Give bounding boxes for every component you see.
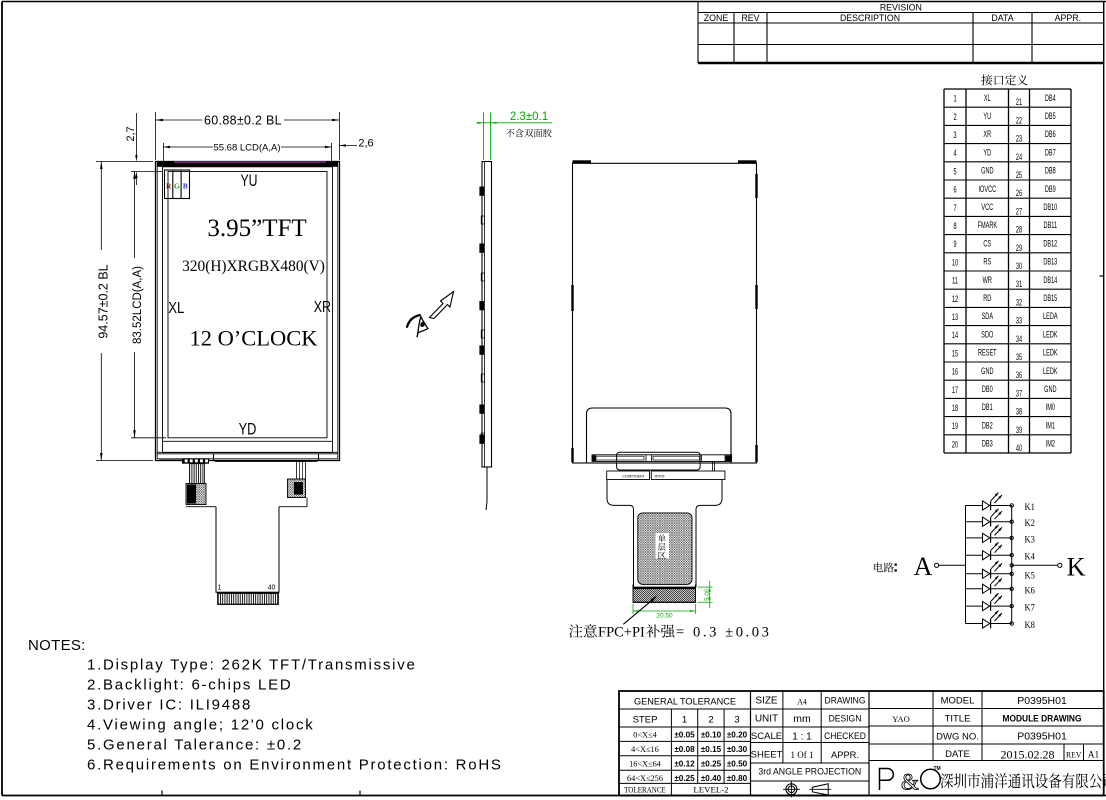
svg-text:DB13: DB13: [1043, 256, 1057, 267]
svg-text:16: 16: [952, 366, 958, 377]
svg-text:REVISION: REVISION: [880, 2, 922, 12]
svg-text:±0.12: ±0.12: [674, 758, 695, 768]
svg-text:mm: mm: [793, 713, 811, 725]
svg-text:2.Backlight: 6-chips LED: 2.Backlight: 6-chips LED: [87, 677, 292, 694]
svg-text:COMPONENT: COMPONENT: [622, 474, 645, 478]
svg-text:UNIT: UNIT: [755, 714, 778, 725]
svg-text:DB2: DB2: [982, 420, 993, 431]
svg-text:SIZE: SIZE: [755, 696, 778, 707]
svg-text:DATE: DATE: [945, 749, 970, 760]
svg-text:LEVEL-2: LEVEL-2: [693, 785, 728, 795]
svg-text:&: &: [901, 770, 919, 795]
svg-text:27: 27: [1016, 206, 1022, 217]
svg-text:K2: K2: [1025, 518, 1036, 529]
svg-text:10: 10: [952, 257, 958, 268]
svg-text:DB9: DB9: [1045, 183, 1056, 194]
svg-text:SDO: SDO: [981, 329, 993, 340]
svg-text:1: 1: [953, 93, 956, 104]
svg-text:60.88±0.2 BL: 60.88±0.2 BL: [204, 114, 282, 128]
svg-text:5.00: 5.00: [704, 588, 711, 601]
svg-text:13: 13: [952, 312, 958, 323]
svg-text:ZONE: ZONE: [704, 13, 729, 23]
svg-text:TM: TM: [934, 766, 941, 772]
svg-text:SHEET: SHEET: [751, 750, 783, 761]
svg-text:GND: GND: [981, 365, 994, 376]
svg-text:15: 15: [952, 348, 958, 359]
svg-text:MODEL: MODEL: [941, 696, 975, 707]
svg-text:FPC+PI: FPC+PI: [598, 625, 645, 641]
svg-text:IOVCC: IOVCC: [978, 183, 996, 194]
svg-text:3rd ANGLE PROJECTION: 3rd ANGLE PROJECTION: [758, 766, 861, 776]
svg-text:XR: XR: [983, 129, 991, 140]
svg-text:2,7: 2,7: [125, 126, 137, 141]
svg-text:36: 36: [1016, 370, 1022, 381]
svg-text:3.95”TFT: 3.95”TFT: [207, 215, 306, 242]
svg-text:±0.20: ±0.20: [727, 729, 748, 739]
svg-text:94.57±0.2 BL: 94.57±0.2 BL: [97, 264, 111, 338]
svg-text:31: 31: [1016, 279, 1022, 290]
svg-text:2015.02.28: 2015.02.28: [1001, 748, 1055, 762]
svg-text:30: 30: [1016, 261, 1022, 272]
svg-text:2.3±0.1: 2.3±0.1: [510, 111, 548, 123]
svg-text:2: 2: [708, 715, 713, 726]
svg-text:RESET: RESET: [978, 347, 997, 358]
svg-text:DB8: DB8: [1045, 165, 1056, 176]
svg-text:19: 19: [952, 421, 958, 432]
svg-text:TOLERANCE: TOLERANCE: [624, 785, 666, 795]
svg-text:1: 1: [682, 715, 687, 726]
svg-text:REV: REV: [741, 13, 759, 23]
svg-text:SDA: SDA: [982, 311, 993, 322]
svg-text:12: 12: [952, 293, 958, 304]
svg-text:APPR.: APPR.: [831, 750, 859, 760]
svg-text:0<X≤4: 0<X≤4: [633, 731, 657, 740]
svg-text:DB0: DB0: [982, 384, 993, 395]
svg-text:20.50: 20.50: [656, 612, 673, 619]
svg-text:40: 40: [268, 585, 276, 592]
svg-text:K5: K5: [1025, 570, 1036, 581]
svg-text:38: 38: [1016, 406, 1022, 417]
svg-text:DATA: DATA: [991, 13, 1013, 23]
svg-text:IM2: IM2: [1046, 438, 1055, 449]
svg-text:P0395H01: P0395H01: [1017, 731, 1067, 743]
svg-text:A1: A1: [1088, 751, 1100, 761]
svg-text:DB4: DB4: [1045, 92, 1056, 103]
svg-text:RD: RD: [983, 293, 991, 304]
svg-text:29: 29: [1016, 242, 1022, 253]
svg-text:20: 20: [952, 439, 958, 450]
svg-text:B: B: [183, 183, 188, 191]
svg-text:LEDK: LEDK: [1043, 365, 1058, 376]
svg-text:17: 17: [952, 384, 958, 395]
svg-text:35: 35: [1016, 352, 1022, 363]
svg-text:3: 3: [953, 130, 956, 141]
svg-text:DB15: DB15: [1043, 293, 1057, 304]
svg-text:±0.25: ±0.25: [701, 758, 722, 768]
svg-text:40: 40: [1016, 443, 1022, 454]
svg-text:K3: K3: [1025, 534, 1036, 545]
svg-text:22: 22: [1016, 115, 1022, 126]
svg-text:DB5: DB5: [1045, 111, 1056, 122]
svg-text:LEDK: LEDK: [1043, 329, 1058, 340]
svg-text:DB7: DB7: [1045, 147, 1056, 158]
svg-text:4<X≤16: 4<X≤16: [631, 745, 659, 754]
svg-text:YAO: YAO: [892, 714, 909, 724]
svg-text:6.Requirements on Environment: 6.Requirements on Environment Protection…: [87, 757, 503, 774]
svg-text:MODULE DRAWING: MODULE DRAWING: [1003, 713, 1082, 723]
svg-text:YD: YD: [983, 147, 991, 158]
svg-text:1: 1: [218, 585, 222, 592]
svg-text:DESCRIPTION: DESCRIPTION: [840, 13, 900, 23]
svg-text:K4: K4: [1025, 551, 1036, 562]
svg-text:REV: REV: [1066, 750, 1081, 759]
svg-text:APPR.: APPR.: [1055, 13, 1081, 23]
svg-text:5: 5: [953, 166, 956, 177]
svg-text:26: 26: [1016, 188, 1022, 199]
svg-text:33: 33: [1016, 315, 1022, 326]
svg-text:8: 8: [953, 221, 956, 232]
svg-text:LEDA: LEDA: [1043, 311, 1058, 322]
svg-text:DB11: DB11: [1044, 220, 1058, 231]
svg-text:NOTES:: NOTES:: [28, 637, 86, 654]
svg-text:MTP05: MTP05: [655, 474, 665, 478]
svg-text:25: 25: [1016, 170, 1022, 181]
svg-text:12 O’CLOCK: 12 O’CLOCK: [189, 326, 318, 351]
svg-text:±0.05: ±0.05: [674, 729, 695, 739]
svg-text:320(H)XRGBX480(V): 320(H)XRGBX480(V): [182, 258, 325, 275]
svg-text:32: 32: [1016, 297, 1022, 308]
svg-text:XL: XL: [168, 300, 184, 317]
svg-text:DESIGN: DESIGN: [829, 713, 862, 723]
svg-text:21: 21: [1016, 97, 1022, 108]
svg-text:2,6: 2,6: [358, 138, 373, 150]
svg-text:DRAWING: DRAWING: [825, 695, 866, 705]
svg-text:3: 3: [734, 715, 739, 726]
svg-text:1.Display Type: 262K TFT/Trans: 1.Display Type: 262K TFT/Transmissive: [87, 657, 417, 674]
svg-text:±0.25: ±0.25: [674, 773, 695, 783]
svg-text:±0.08: ±0.08: [674, 744, 695, 754]
svg-text:83.52LCD(A,A): 83.52LCD(A,A): [132, 266, 144, 344]
svg-text:39: 39: [1016, 424, 1022, 435]
svg-text:K: K: [1067, 553, 1086, 582]
svg-text:K1: K1: [1025, 502, 1035, 513]
svg-text:DB6: DB6: [1045, 129, 1056, 140]
svg-text:DB10: DB10: [1043, 202, 1057, 213]
svg-text:4.Viewing angle; 12'0 clock: 4.Viewing angle; 12'0 clock: [87, 717, 314, 734]
svg-text:16<X≤64: 16<X≤64: [629, 759, 662, 768]
svg-text:YU: YU: [241, 172, 258, 190]
svg-text:28: 28: [1016, 224, 1022, 235]
svg-text:34: 34: [1016, 333, 1022, 344]
svg-text:DWG NO.: DWG NO.: [936, 732, 979, 743]
svg-text:= 0.3 ±0.03: = 0.3 ±0.03: [676, 625, 772, 641]
svg-text:GENERAL TOLERANCE: GENERAL TOLERANCE: [634, 697, 736, 707]
svg-text:YU: YU: [983, 111, 991, 122]
svg-text:A: A: [914, 552, 933, 581]
svg-text:55.68 LCD(A,A): 55.68 LCD(A,A): [213, 143, 280, 154]
svg-text:CHECKED: CHECKED: [824, 731, 866, 741]
svg-text:±0.15: ±0.15: [701, 744, 722, 754]
svg-text:K8: K8: [1025, 620, 1036, 631]
svg-text:K7: K7: [1025, 602, 1036, 613]
svg-text:FMARK: FMARK: [978, 220, 997, 231]
svg-text:±0.30: ±0.30: [727, 744, 748, 754]
svg-text:14: 14: [952, 330, 958, 341]
svg-text:5.General Talerance: ±0.2: 5.General Talerance: ±0.2: [87, 737, 303, 754]
svg-text:11: 11: [952, 275, 958, 286]
svg-text:P0395H01: P0395H01: [1017, 695, 1067, 707]
svg-text:±0.50: ±0.50: [727, 758, 748, 768]
svg-text:XL: XL: [984, 92, 991, 103]
svg-text:1 Of 1: 1 Of 1: [791, 750, 814, 760]
svg-text:DB12: DB12: [1043, 238, 1057, 249]
svg-text:IM1: IM1: [1046, 420, 1055, 431]
svg-text:23: 23: [1016, 133, 1022, 144]
svg-text:DB14: DB14: [1043, 274, 1057, 285]
svg-text:DB1: DB1: [982, 402, 993, 413]
svg-text:9: 9: [953, 239, 956, 250]
svg-text:24: 24: [1016, 151, 1022, 162]
svg-text:6: 6: [953, 184, 956, 195]
svg-text:WR: WR: [983, 274, 993, 285]
svg-text:DB3: DB3: [982, 438, 993, 449]
svg-text:18: 18: [952, 403, 958, 414]
svg-text:SCALE: SCALE: [751, 731, 782, 742]
svg-text:LEDK: LEDK: [1043, 347, 1058, 358]
svg-text:XR: XR: [314, 298, 331, 316]
svg-text:GND: GND: [981, 165, 994, 176]
svg-text:R: R: [166, 183, 172, 191]
svg-text:4: 4: [953, 148, 956, 159]
svg-text:TITLE: TITLE: [945, 714, 971, 725]
svg-text:7: 7: [953, 202, 956, 213]
svg-text:RS: RS: [983, 256, 991, 267]
svg-text:37: 37: [1016, 388, 1022, 399]
svg-text:VCC: VCC: [981, 202, 993, 213]
svg-text:YD: YD: [239, 420, 257, 439]
svg-text:±0.10: ±0.10: [701, 729, 722, 739]
svg-text:±0.40: ±0.40: [701, 773, 722, 783]
svg-text:64<X≤256: 64<X≤256: [627, 774, 663, 783]
svg-text:2: 2: [953, 111, 956, 122]
svg-text:3.Driver IC: ILI9488: 3.Driver IC: ILI9488: [87, 697, 252, 714]
svg-text:K6: K6: [1025, 585, 1036, 596]
svg-text:A4: A4: [797, 698, 807, 707]
svg-text:STEP: STEP: [633, 715, 658, 726]
svg-text:1 : 1: 1 : 1: [792, 732, 812, 743]
svg-text:±0.80: ±0.80: [727, 773, 748, 783]
svg-text:G: G: [174, 183, 180, 191]
svg-text:GND: GND: [1044, 384, 1057, 395]
svg-text:IM0: IM0: [1046, 402, 1055, 413]
svg-text:CS: CS: [983, 238, 991, 249]
